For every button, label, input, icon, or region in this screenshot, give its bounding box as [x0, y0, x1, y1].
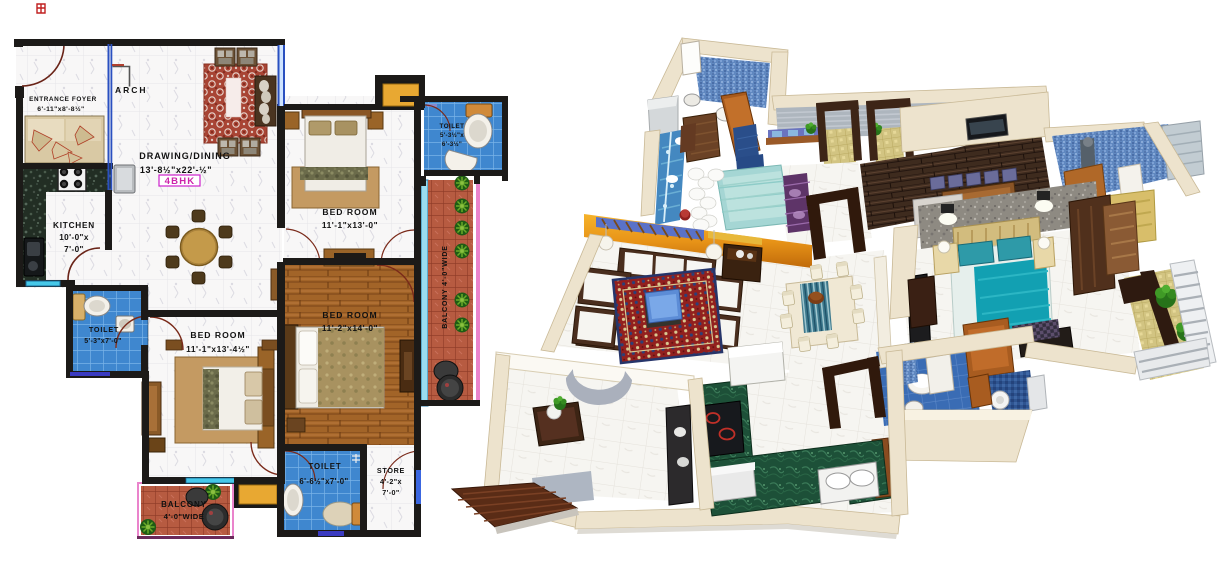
- svg-text:ARCH: ARCH: [115, 85, 148, 95]
- svg-text:5'-3½"x: 5'-3½"x: [440, 132, 464, 139]
- svg-text:BED ROOM: BED ROOM: [190, 330, 245, 340]
- svg-text:13'-8½"x22'-½": 13'-8½"x22'-½": [140, 165, 212, 175]
- svg-text:TOILET: TOILET: [309, 462, 342, 471]
- svg-text:ENTRANCE FOYER: ENTRANCE FOYER: [29, 96, 97, 103]
- svg-text:11'-1"x13'-0": 11'-1"x13'-0": [322, 220, 378, 230]
- svg-text:STORE: STORE: [377, 466, 405, 475]
- svg-text:4'-0"WIDE: 4'-0"WIDE: [164, 512, 205, 521]
- svg-text:6'-6½"x7'-0": 6'-6½"x7'-0": [299, 477, 348, 486]
- svg-text:11'-2"x14'-0": 11'-2"x14'-0": [322, 323, 378, 333]
- svg-text:4BHK: 4BHK: [165, 176, 196, 187]
- svg-text:6'-11"x8'-8½": 6'-11"x8'-8½": [37, 105, 84, 113]
- svg-text:KITCHEN: KITCHEN: [53, 221, 95, 230]
- svg-text:7'-0": 7'-0": [382, 488, 400, 497]
- svg-text:BED ROOM: BED ROOM: [322, 207, 377, 217]
- svg-text:BALCONY 4'-0"WIDE: BALCONY 4'-0"WIDE: [442, 245, 449, 328]
- svg-text:7'-0": 7'-0": [64, 245, 84, 254]
- svg-text:5'-3"x7'-0": 5'-3"x7'-0": [84, 338, 121, 345]
- svg-text:DRAWING/DINING: DRAWING/DINING: [139, 151, 231, 161]
- svg-text:11'-1"x13'-4½": 11'-1"x13'-4½": [186, 344, 250, 354]
- svg-text:4'-2"x: 4'-2"x: [380, 477, 402, 486]
- svg-text:TOILET: TOILET: [440, 123, 465, 130]
- svg-text:BED ROOM: BED ROOM: [322, 310, 377, 320]
- svg-text:BALCONY: BALCONY: [161, 500, 207, 509]
- svg-text:TOILET: TOILET: [89, 325, 119, 334]
- svg-text:10'-0"x: 10'-0"x: [59, 233, 89, 242]
- svg-text:6'-3½": 6'-3½": [442, 141, 462, 148]
